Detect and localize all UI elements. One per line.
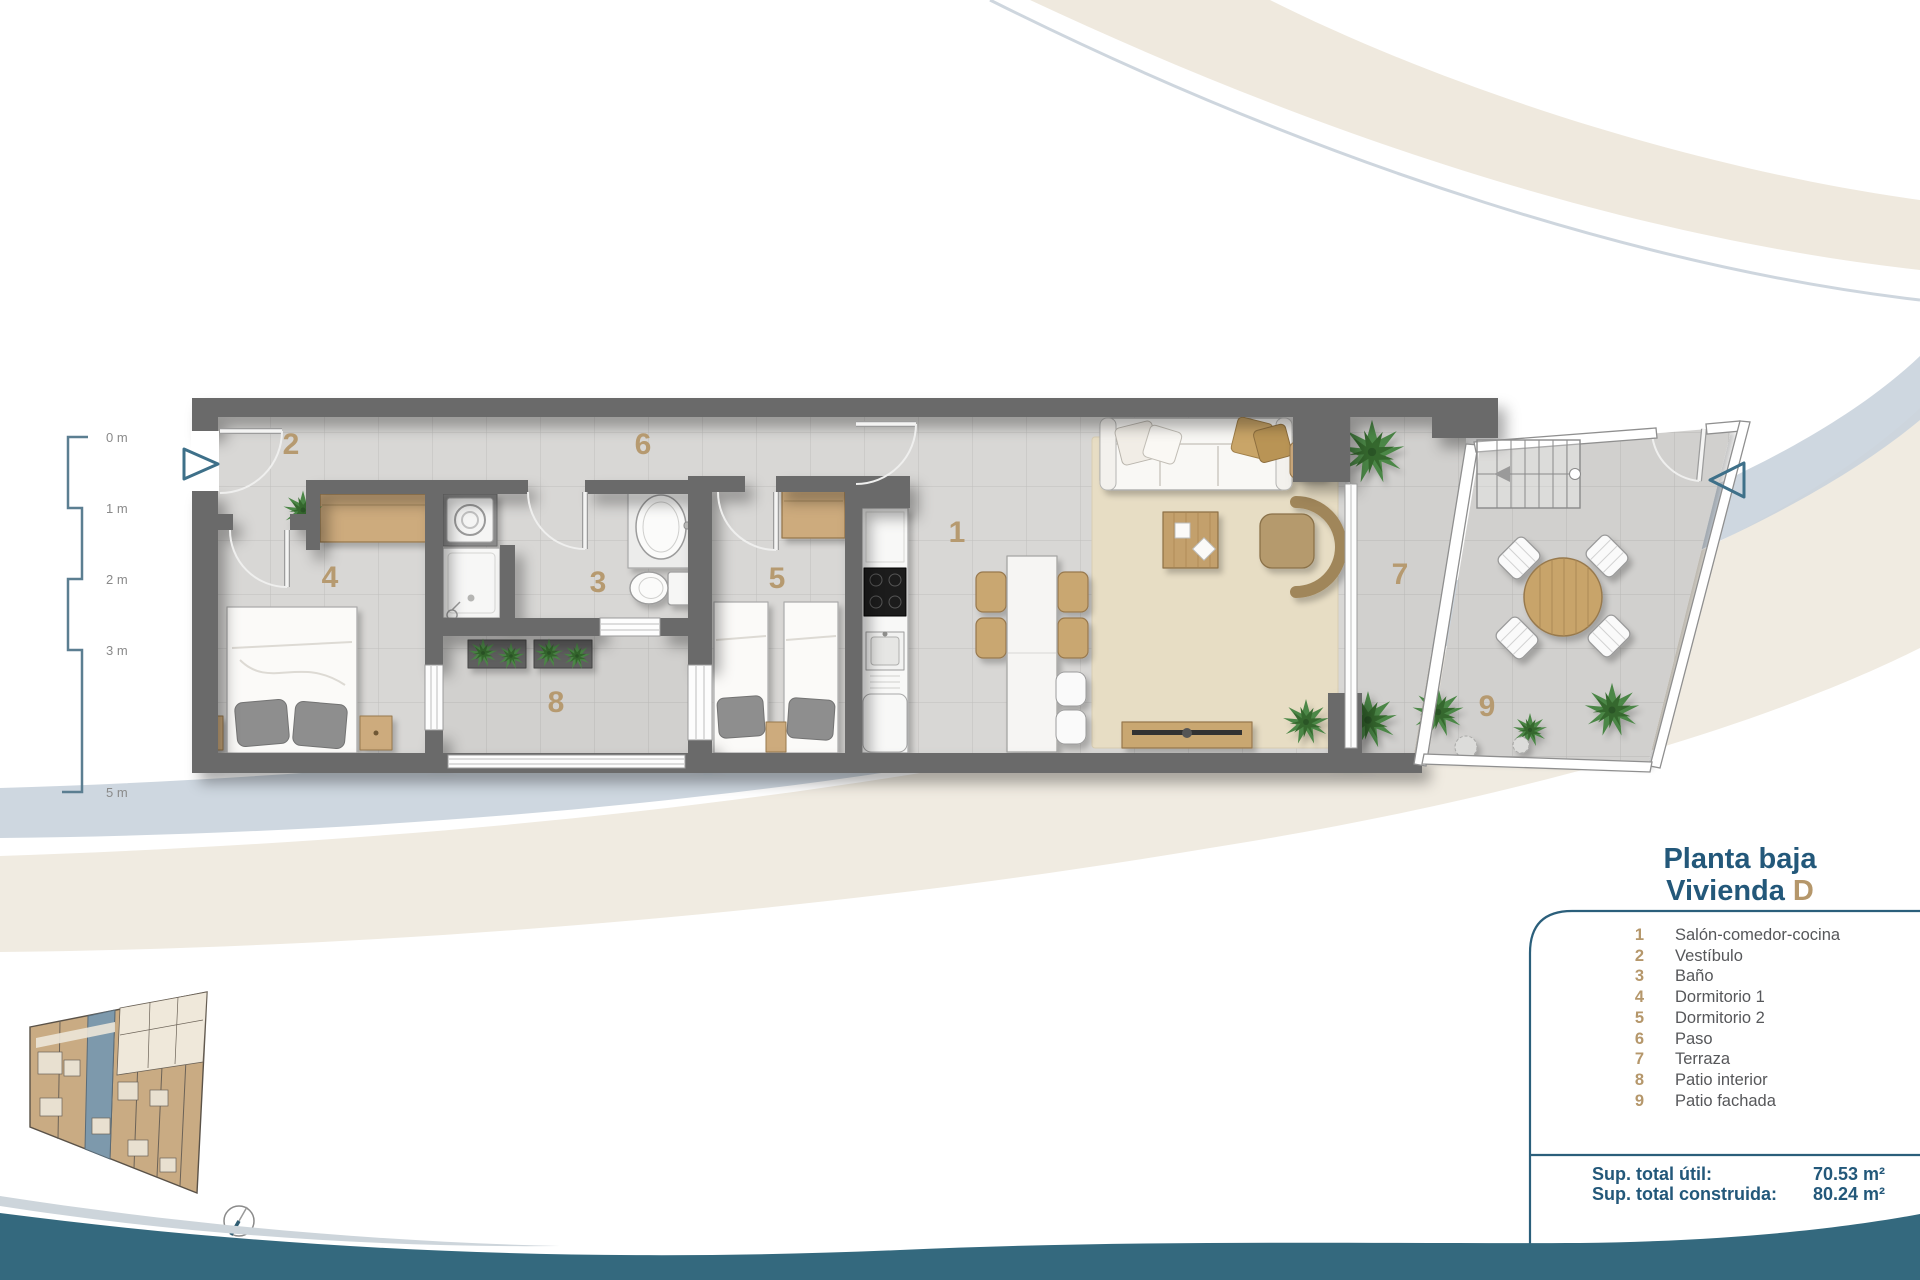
room-label-3: 3 <box>590 566 607 599</box>
stairs-start-marker <box>1570 469 1581 480</box>
kitchen-counter <box>862 508 908 753</box>
totals-label: Sup. total útil: <box>1592 1165 1712 1185</box>
totals-value: 70.53 m² <box>1813 1165 1885 1185</box>
legend-row: 1Salón-comedor-cocina <box>1530 925 1870 946</box>
bush <box>1513 737 1529 753</box>
room-label-5: 5 <box>769 562 786 595</box>
stool <box>1056 672 1086 706</box>
totals-row-util: Sup. total útil:70.53 m² <box>1592 1165 1885 1185</box>
scale-label-3m: 3 m <box>106 643 128 658</box>
legend-num: 3 <box>1530 966 1644 987</box>
legend-num: 7 <box>1530 1049 1644 1070</box>
stool <box>1056 710 1086 744</box>
nightstand <box>766 722 786 752</box>
scale-label-5m: 5 m <box>106 785 128 800</box>
room-label-8: 8 <box>548 686 565 719</box>
totals-row-construida: Sup. total construida:80.24 m² <box>1592 1185 1885 1205</box>
legend-label: Patio interior <box>1675 1070 1768 1091</box>
room-label-1: 1 <box>949 516 966 549</box>
room-label-7: 7 <box>1392 558 1409 591</box>
shower <box>443 548 500 620</box>
scale-label-1m: 1 m <box>106 501 128 516</box>
legend-label: Salón-comedor-cocina <box>1675 925 1840 946</box>
totals-label: Sup. total construida: <box>1592 1185 1777 1205</box>
room-label-6: 6 <box>635 428 652 461</box>
legend-label: Terraza <box>1675 1049 1730 1070</box>
plan-title-vivienda: Vivienda <box>1666 875 1785 907</box>
legend-row: 4Dormitorio 1 <box>1530 987 1870 1008</box>
floor-plan: 1 2 3 4 5 6 7 8 9 <box>184 398 1750 773</box>
legend-row: 6Paso <box>1530 1029 1870 1050</box>
legend-num: 9 <box>1530 1091 1644 1112</box>
footer-waves <box>0 1196 1920 1280</box>
coffee-table <box>1163 512 1218 568</box>
totals-value: 80.24 m² <box>1813 1185 1885 1205</box>
footer-wave-shape <box>0 1213 1920 1280</box>
legend-num: 4 <box>1530 987 1644 1008</box>
site-plan-minimap <box>30 992 207 1193</box>
legend-label: Vestíbulo <box>1675 946 1743 967</box>
staircase <box>1477 440 1581 508</box>
tv-sideboard <box>1122 722 1252 748</box>
legend-num: 8 <box>1530 1070 1644 1091</box>
plan-title: Planta baja ViviendaD <box>1590 843 1890 907</box>
legend-row: 8Patio interior <box>1530 1070 1870 1091</box>
legend-num: 2 <box>1530 946 1644 967</box>
area-totals: Sup. total útil:70.53 m² Sup. total cons… <box>1592 1165 1885 1204</box>
sofa <box>1100 416 1293 490</box>
legend-label: Baño <box>1675 966 1714 987</box>
floorplan-sheet: 1 2 3 4 5 6 7 8 9 0 m 1 m 2 m 3 m 5 m <box>0 0 1920 1280</box>
bedroom2-wardrobe <box>782 490 845 538</box>
legend-num: 6 <box>1530 1029 1644 1050</box>
scale-label-0m: 0 m <box>106 430 128 445</box>
legend-label: Dormitorio 2 <box>1675 1008 1765 1029</box>
legend-label: Paso <box>1675 1029 1713 1050</box>
legend-num: 1 <box>1530 925 1644 946</box>
room-legend: 1Salón-comedor-cocina 2Vestíbulo 3Baño 4… <box>1530 925 1870 1111</box>
plan-title-unit-letter: D <box>1793 875 1814 907</box>
scale-bar-line <box>62 437 88 792</box>
bedroom1-bed <box>227 607 357 753</box>
plan-title-line2: ViviendaD <box>1590 875 1890 907</box>
washing-machine <box>443 494 497 546</box>
legend-label: Dormitorio 1 <box>1675 987 1765 1008</box>
plan-title-line1: Planta baja <box>1590 843 1890 875</box>
legend-row: 7Terraza <box>1530 1049 1870 1070</box>
scale-label-2m: 2 m <box>106 572 128 587</box>
legend-row: 9Patio fachada <box>1530 1091 1870 1112</box>
scale-bar: 0 m 1 m 2 m 3 m 5 m <box>62 430 128 800</box>
legend-row: 5Dormitorio 2 <box>1530 1008 1870 1029</box>
legend-label: Patio fachada <box>1675 1091 1776 1112</box>
legend-row: 3Baño <box>1530 966 1870 987</box>
hall-wardrobe <box>320 494 430 542</box>
room-label-2: 2 <box>283 428 300 461</box>
room-label-9: 9 <box>1479 690 1496 723</box>
legend-num: 5 <box>1530 1008 1644 1029</box>
room-label-4: 4 <box>322 561 339 594</box>
legend-row: 2Vestíbulo <box>1530 946 1870 967</box>
